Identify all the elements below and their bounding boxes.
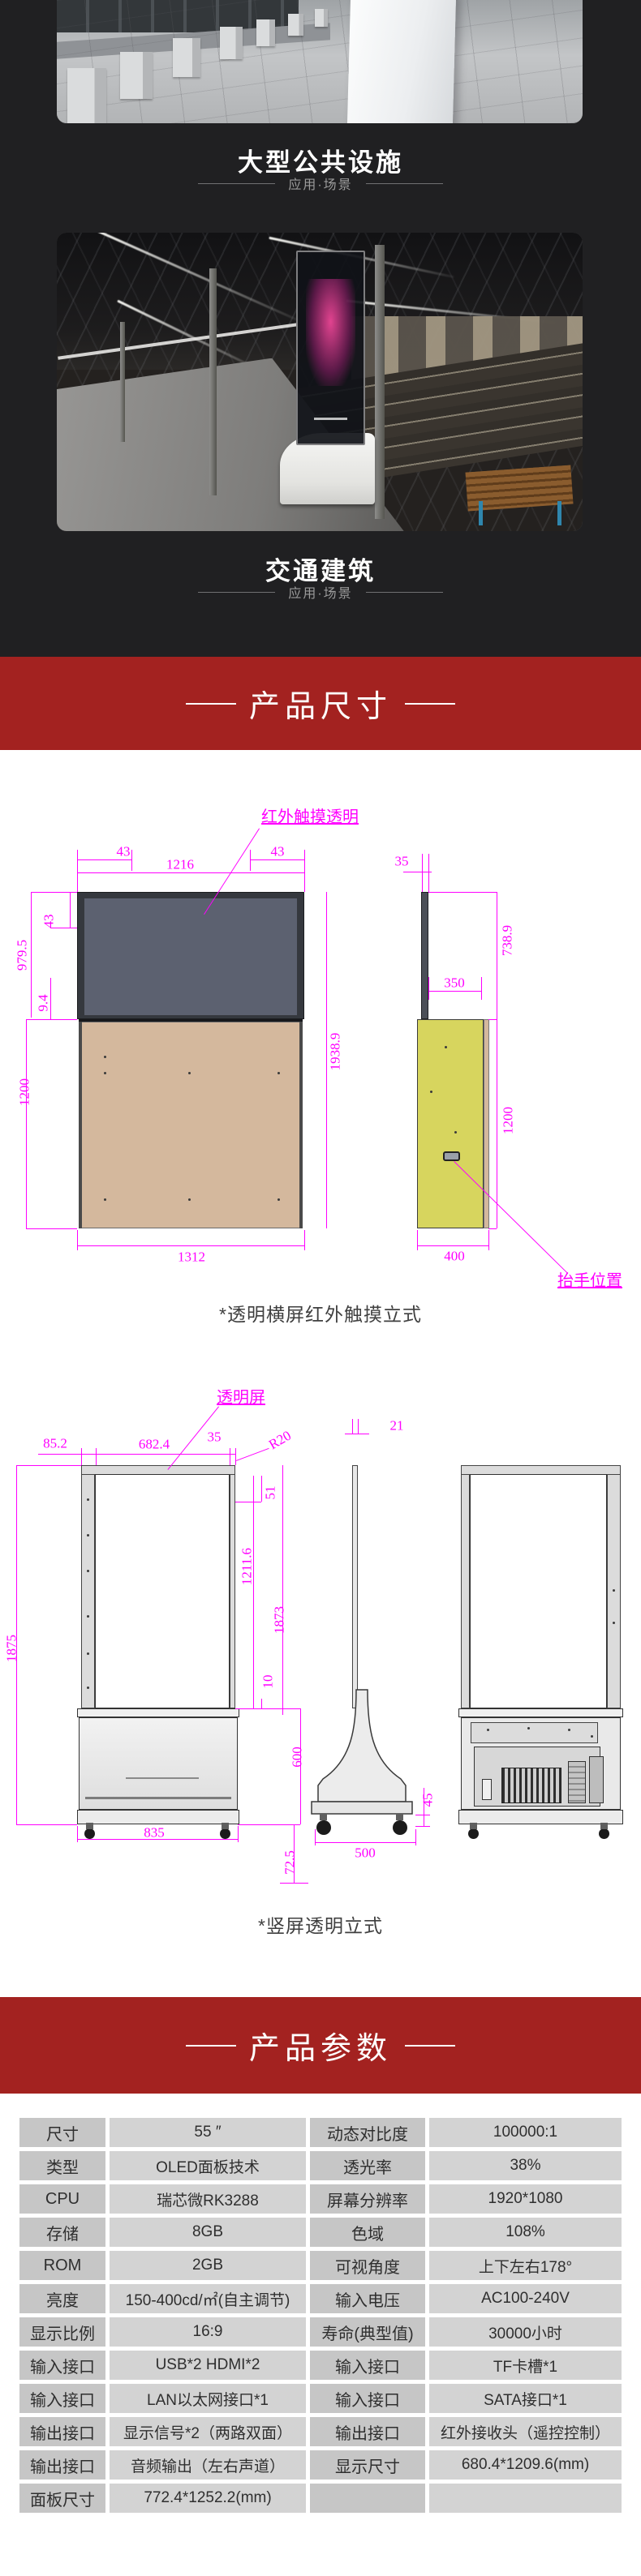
spec-table: 尺寸55 ″动态对比度100000:1类型OLED面板技术透光率38%CPU瑞芯… (19, 2118, 622, 2513)
spec-label: 输出接口 (19, 2450, 105, 2480)
subtitle-rule-left (198, 183, 275, 184)
spec-label: 显示比例 (19, 2317, 105, 2347)
spec-label: 类型 (19, 2151, 105, 2180)
dimension-label: 500 (355, 1846, 376, 1860)
concrete-block (315, 9, 328, 27)
bench-leg (557, 501, 561, 525)
spec-value: 显示信号*2（两路双面） (110, 2417, 306, 2446)
spec-label: CPU (19, 2184, 105, 2214)
application-photo-public-facility (57, 0, 583, 123)
concrete-block (288, 14, 303, 36)
dimension-label: 43 (117, 845, 131, 859)
dimension-label: 85.2 (43, 1437, 67, 1451)
screw-dot (188, 1198, 191, 1201)
spec-label: 透光率 (310, 2151, 425, 2180)
side-view-body (417, 1019, 484, 1228)
spec-label: 亮度 (19, 2284, 105, 2313)
application-photo-transport (57, 233, 583, 531)
subtitle-text: 应用·场景 (288, 174, 352, 193)
dimension-label: 10 (261, 1675, 275, 1689)
white-display-monolith (346, 0, 455, 123)
spec-label: 输出接口 (310, 2417, 425, 2446)
spec-label: 输入接口 (310, 2384, 425, 2413)
screw-dot (454, 1131, 457, 1134)
base-plinth (77, 1810, 239, 1824)
dimension-label: 72.5 (283, 1850, 297, 1875)
spec-label: 寿命(典型值) (310, 2317, 425, 2347)
side-view-back-strip (484, 1019, 489, 1228)
dimension-label: 1312 (178, 1250, 205, 1264)
rear-base-lip (458, 1708, 623, 1717)
spec-value: TF卡槽*1 (429, 2351, 622, 2380)
cabinet-vent-line (85, 1797, 231, 1799)
spec-value: 108% (429, 2218, 622, 2247)
platform-pole (120, 322, 125, 441)
dimension-label: 21 (390, 1419, 404, 1433)
spec-value: 680.4*1209.6(mm) (429, 2450, 622, 2480)
curved-pedestal (310, 1688, 415, 1844)
spec-value (429, 2484, 622, 2513)
product-detail-page: 大型公共设施 应用·场景 (0, 0, 641, 2576)
rear-vent-panel (471, 1722, 598, 1743)
spec-value: 上下左右178° (429, 2251, 622, 2280)
dimension-label: 35 (395, 855, 409, 868)
screen-caption-bar (314, 418, 347, 420)
io-slot (482, 1779, 492, 1800)
side-view-screen-panel (421, 892, 428, 1019)
spec-value: 16:9 (110, 2317, 306, 2347)
spec-value: 150-400cd/㎡(自主调节) (110, 2284, 306, 2313)
subtitle-rule-right (366, 183, 443, 184)
dimension-label: 43 (42, 915, 56, 928)
io-board (568, 1761, 586, 1803)
screen-content-glow (306, 279, 356, 386)
concrete-block (173, 38, 200, 77)
drawing2-caption: *竖屏透明立式 (0, 1910, 641, 1938)
spec-label: 输入接口 (310, 2351, 425, 2380)
dimension-label: 1200 (501, 1107, 515, 1134)
spec-value: 瑞芯微RK3288 (110, 2184, 306, 2214)
spec-label: 屏幕分辨率 (310, 2184, 425, 2214)
dimension-label: 400 (444, 1249, 465, 1263)
base-top-lip (77, 1708, 239, 1717)
drawing-note: 透明屏 (217, 1390, 265, 1406)
spec-label: 存储 (19, 2218, 105, 2247)
dimension-label: 51 (264, 1486, 277, 1500)
dimension-label: 979.5 (15, 940, 29, 971)
dimension-label: 1200 (18, 1078, 32, 1106)
spec-value: 55 ″ (110, 2118, 306, 2147)
dimension-label: 45 (421, 1794, 435, 1807)
banner-dash-left (186, 703, 236, 705)
spec-label: 输入接口 (19, 2384, 105, 2413)
spec-value: 2GB (110, 2251, 306, 2280)
front-view-screen (84, 898, 297, 1015)
spec-label: 色域 (310, 2218, 425, 2247)
spec-value: 1920*1080 (429, 2184, 622, 2214)
subtitle-text: 应用·场景 (288, 582, 352, 602)
dimension-label: 350 (444, 976, 465, 990)
screw-dot (445, 1046, 447, 1048)
power-module (589, 1756, 604, 1803)
spec-label: 尺寸 (19, 2118, 105, 2147)
panel-edge-right (299, 1022, 303, 1228)
base-cabinet-front (79, 1717, 238, 1810)
concrete-block (67, 68, 106, 123)
drawing1-caption: *透明横屏红外触摸立式 (0, 1299, 641, 1327)
rear-screen-area (470, 1474, 607, 1708)
spec-label: ROM (19, 2251, 105, 2280)
drawing-note: 红外触摸透明 (261, 809, 359, 825)
spec-value: 100000:1 (429, 2118, 622, 2147)
ventilation-grille (501, 1768, 561, 1803)
screw-dot (277, 1072, 280, 1074)
dimension-label: 1875 (5, 1635, 19, 1662)
dimension-label: 1211.6 (240, 1548, 254, 1585)
spec-value: 30000小时 (429, 2317, 622, 2347)
dimension-label: R20 (266, 1429, 293, 1452)
dimension-label: 600 (290, 1747, 304, 1768)
rear-plinth (458, 1810, 623, 1824)
concrete-block (256, 19, 275, 46)
spec-value: 8GB (110, 2218, 306, 2247)
spec-label: 输入接口 (19, 2351, 105, 2380)
front-view-lower-panel (79, 1022, 303, 1228)
banner-dash-right (405, 703, 455, 705)
platform-pole (209, 268, 217, 495)
banner-product-dimensions: 产品尺寸 (0, 657, 641, 750)
screw-dot (104, 1072, 106, 1074)
dimension-label: 9.4 (37, 994, 50, 1011)
screw-dot (104, 1056, 106, 1058)
subtitle-rule-left (198, 592, 275, 593)
dimension-label: 682.4 (139, 1438, 170, 1451)
cabinet-seam (126, 1777, 199, 1779)
spec-value: 38% (429, 2151, 622, 2180)
platform-pole (375, 245, 385, 520)
banner-dash-right (405, 2045, 455, 2047)
spec-value: AC100-240V (429, 2284, 622, 2313)
transparent-display-kiosk (296, 251, 365, 445)
screw-dot (277, 1198, 280, 1201)
rear-left-strip (461, 1474, 470, 1708)
spec-value: USB*2 HDMI*2 (110, 2351, 306, 2380)
dimension-label: 1216 (166, 858, 194, 872)
spec-label: 输入电压 (310, 2284, 425, 2313)
spec-label: 输出接口 (19, 2417, 105, 2446)
dimension-label: 1873 (273, 1606, 286, 1634)
portrait-right-strip (230, 1474, 235, 1708)
bench-leg (479, 501, 483, 525)
screw-dot (430, 1091, 432, 1093)
concrete-block (220, 27, 243, 59)
spec-value: SATA接口*1 (429, 2384, 622, 2413)
banner-dash-left (186, 2045, 236, 2047)
spec-label (310, 2484, 425, 2513)
dimension-label: 738.9 (501, 925, 514, 956)
transparent-screen-area (95, 1474, 230, 1708)
hero-section: 大型公共设施 应用·场景 (0, 0, 641, 657)
screw-dot (104, 1198, 106, 1201)
spec-value: 772.4*1252.2(mm) (110, 2484, 306, 2513)
dimension-label: 1938.9 (329, 1033, 342, 1071)
spec-value: 音频输出（左右声道） (110, 2450, 306, 2480)
drawing-note: 抬手位置 (557, 1273, 622, 1289)
subtitle-rule-right (366, 592, 443, 593)
concrete-block (120, 52, 153, 99)
lift-handle-slot (443, 1151, 460, 1161)
banner-title: 产品尺寸 (249, 681, 392, 726)
spec-label: 显示尺寸 (310, 2450, 425, 2480)
screw-dot (188, 1072, 191, 1074)
banner-product-parameters: 产品参数 (0, 1997, 641, 2094)
side-view-thin-screen (352, 1465, 358, 1708)
portrait-left-column (81, 1474, 95, 1708)
panel-edge-left (79, 1022, 82, 1228)
spec-label: 面板尺寸 (19, 2484, 105, 2513)
dimension-label: 43 (271, 845, 285, 859)
spec-value: LAN以太网接口*1 (110, 2384, 306, 2413)
section-subtitle: 应用·场景 (0, 582, 641, 602)
spec-value: 红外接收头（遥控控制） (429, 2417, 622, 2446)
section-subtitle: 应用·场景 (0, 174, 641, 193)
spec-value: OLED面板技术 (110, 2151, 306, 2180)
dimension-label: 35 (208, 1430, 222, 1444)
dimension-label: 835 (144, 1826, 165, 1840)
spec-label: 可视角度 (310, 2251, 425, 2280)
spec-label: 动态对比度 (310, 2118, 425, 2147)
banner-title: 产品参数 (249, 2023, 392, 2068)
